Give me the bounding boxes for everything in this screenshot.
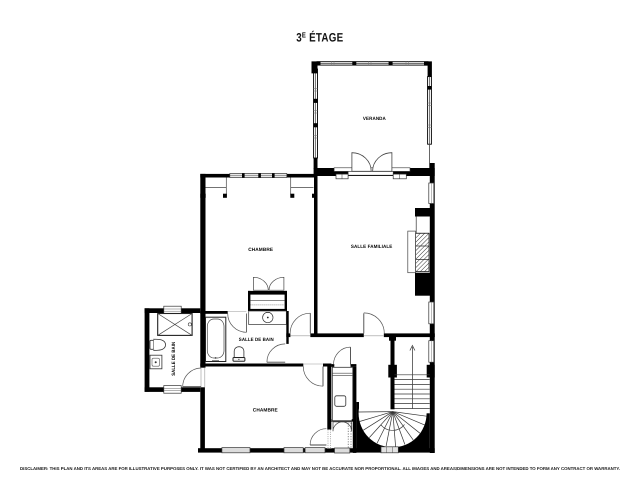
svg-text:CHAMBRE: CHAMBRE — [248, 247, 274, 253]
svg-text:SALLE FAMILIALE: SALLE FAMILIALE — [351, 244, 393, 250]
svg-text:VERANDA: VERANDA — [363, 116, 386, 122]
svg-text:CHAMBRE: CHAMBRE — [253, 407, 279, 413]
svg-text:SALLE DE BAIN: SALLE DE BAIN — [171, 341, 177, 375]
svg-text:DISCLAIMER: THIS PLAN AND ITS: DISCLAIMER: THIS PLAN AND ITS AREAS ARE … — [20, 466, 620, 471]
svg-text:SALLE DE BAIN: SALLE DE BAIN — [239, 337, 274, 343]
